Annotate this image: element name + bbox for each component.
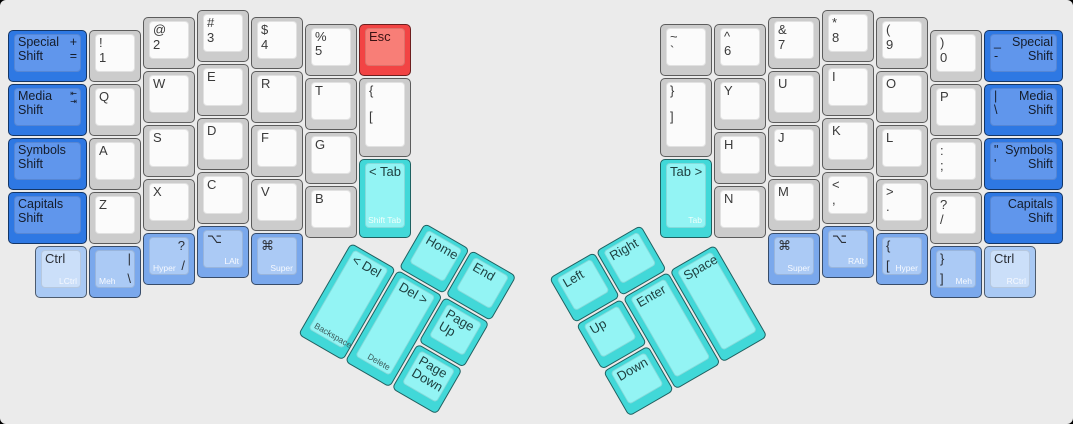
key-n-cap: N bbox=[720, 190, 760, 228]
key-a-label-tl: A bbox=[99, 144, 108, 158]
key-w-label-tl: W bbox=[153, 77, 165, 91]
key-arrow-left-cap: Left bbox=[556, 258, 610, 311]
key-capitals-shift-left[interactable]: Capitals Shift bbox=[8, 192, 87, 244]
key-hyper-left-cap: ?Hyper/ bbox=[149, 237, 189, 275]
key-meh-right-label-bl: ] bbox=[940, 272, 944, 286]
key-hyper-left[interactable]: ?Hyper/ bbox=[143, 233, 195, 285]
key-backspace-label-bl: Backspace bbox=[313, 321, 354, 350]
key-period-label-cl: . bbox=[886, 200, 890, 214]
key-tab-label-br: Tab bbox=[688, 216, 702, 225]
key-6-label-tl: ^ bbox=[724, 30, 730, 44]
key-9-label-tl: ( bbox=[886, 23, 890, 37]
key-d-label-tl: D bbox=[207, 124, 216, 138]
key-esc-label-tl: Esc bbox=[369, 30, 391, 44]
key-0-cap: )0 bbox=[936, 34, 976, 72]
key-m[interactable]: M bbox=[768, 179, 820, 231]
key-ralt[interactable]: ⌥RAlt bbox=[822, 226, 874, 278]
key-g-label-tl: G bbox=[315, 138, 325, 152]
key-9[interactable]: (9 bbox=[876, 17, 928, 69]
key-j-label-tl: J bbox=[778, 131, 785, 145]
key-slash-label-tl: ? bbox=[940, 198, 947, 212]
key-meh-right-label-br: Meh bbox=[955, 277, 972, 286]
key-backspace-label-tl: < Del bbox=[350, 253, 384, 281]
key-1-label-cl: 1 bbox=[99, 51, 106, 65]
key-slash-label-cl: / bbox=[940, 213, 944, 227]
key-ralt-cap: ⌥RAlt bbox=[828, 230, 868, 268]
key-arrow-right-cap: Right bbox=[603, 231, 657, 284]
key-media-shift-right-label-tr: Media Shift bbox=[1019, 90, 1053, 117]
key-shift-tab-label-br: Shift Tab bbox=[368, 216, 401, 225]
key-comma-label-tl: < bbox=[832, 178, 840, 192]
key-1-label-tl: ! bbox=[99, 36, 103, 50]
key-6-cap: ^6 bbox=[720, 28, 760, 66]
key-5-label-cl: 5 bbox=[315, 44, 322, 58]
key-symbols-shift-right-label-tr: Symbols Shift bbox=[1005, 144, 1053, 171]
key-c-label-tl: C bbox=[207, 178, 216, 192]
key-x-label-tl: X bbox=[153, 185, 162, 199]
key-semicolon-label-cl: ; bbox=[940, 159, 944, 173]
key-lctrl-label-br: LCtrl bbox=[59, 277, 77, 286]
key-end-label-tl: End bbox=[470, 260, 497, 284]
key-2-label-cl: 2 bbox=[153, 38, 160, 52]
keyboard-layout-canvas: Special Shift+ =Media Shift⇤ ⇥Symbols Sh… bbox=[0, 0, 1073, 424]
key-lalt[interactable]: ⌥LAlt bbox=[197, 226, 249, 278]
key-0[interactable]: )0 bbox=[930, 30, 982, 82]
key-meh-left-cap: |Meh\ bbox=[95, 250, 135, 288]
key-hyper-right-label-tl: { bbox=[886, 239, 890, 253]
key-n[interactable]: N bbox=[714, 186, 766, 238]
key-i-cap: I bbox=[828, 68, 868, 106]
key-e[interactable]: E bbox=[197, 64, 249, 116]
key-s[interactable]: S bbox=[143, 125, 195, 177]
key-o-label-tl: O bbox=[886, 77, 896, 91]
key-backtick-label-cl: ` bbox=[670, 44, 674, 58]
key-hyper-left-label-bl: Hyper bbox=[153, 264, 176, 273]
key-f[interactable]: F bbox=[251, 125, 303, 177]
key-c-cap: C bbox=[203, 176, 243, 214]
key-q-cap: Q bbox=[95, 88, 135, 126]
key-semicolon[interactable]: :; bbox=[930, 138, 982, 190]
key-2-cap: @2 bbox=[149, 21, 189, 59]
key-t-cap: T bbox=[311, 82, 351, 120]
key-h[interactable]: H bbox=[714, 132, 766, 184]
key-b-label-tl: B bbox=[315, 192, 324, 206]
key-0-label-cl: 0 bbox=[940, 51, 947, 65]
key-lalt-cap: ⌥LAlt bbox=[203, 230, 243, 268]
key-esc-cap: Esc bbox=[365, 28, 405, 66]
key-lsuper[interactable]: ⌘Super bbox=[251, 233, 303, 285]
key-5-cap: %5 bbox=[311, 28, 351, 66]
key-delete-label-br: Delete bbox=[366, 352, 392, 372]
key-r-cap: R bbox=[257, 75, 297, 113]
key-media-shift-left-cap: Media Shift⇤ ⇥ bbox=[14, 88, 81, 126]
key-r[interactable]: R bbox=[251, 71, 303, 123]
key-4-label-cl: 4 bbox=[261, 38, 268, 52]
key-t[interactable]: T bbox=[305, 78, 357, 130]
key-w[interactable]: W bbox=[143, 71, 195, 123]
key-home-cap: Home bbox=[409, 229, 463, 282]
key-hyper-left-label-br: / bbox=[181, 259, 185, 273]
key-3-cap: #3 bbox=[203, 14, 243, 52]
key-media-shift-left[interactable]: Media Shift⇤ ⇥ bbox=[8, 84, 87, 136]
key-backtick-label-tl: ~ bbox=[670, 30, 678, 44]
key-shift-tab-cap: < TabShift Tab bbox=[365, 163, 405, 228]
key-lsuper-cap: ⌘Super bbox=[257, 237, 297, 275]
key-p-cap: P bbox=[936, 88, 976, 126]
key-y-cap: Y bbox=[720, 82, 760, 120]
key-tab[interactable]: Tab >Tab bbox=[660, 159, 712, 238]
key-capitals-shift-right-label-tr: Capitals Shift bbox=[1008, 198, 1053, 225]
key-period-label-tl: > bbox=[886, 185, 894, 199]
key-j-cap: J bbox=[774, 129, 814, 167]
key-b-cap: B bbox=[311, 190, 351, 228]
key-rsuper-cap: ⌘Super bbox=[774, 237, 814, 275]
key-arrow-down-label-tl: Down bbox=[615, 355, 651, 384]
key-2-label-tl: @ bbox=[153, 23, 166, 37]
key-rsuper-label-br: Super bbox=[787, 264, 810, 273]
key-meh-right-cap: }]Meh bbox=[936, 250, 976, 288]
key-media-shift-right-cap: Media Shift| \ bbox=[990, 88, 1057, 126]
key-u-cap: U bbox=[774, 75, 814, 113]
key-t-label-tl: T bbox=[315, 84, 323, 98]
key-symbols-shift-left-label-tl: Symbols Shift bbox=[18, 144, 66, 171]
key-page-up-label-tl: Page Up bbox=[436, 307, 476, 346]
key-meh-left-label-br: \ bbox=[127, 272, 131, 286]
key-a-cap: A bbox=[95, 142, 135, 180]
key-hyper-right-label-bl: [ bbox=[886, 259, 890, 273]
key-2[interactable]: @2 bbox=[143, 17, 195, 69]
key-symbols-shift-right-label-tl: " ' bbox=[994, 144, 998, 171]
key-enter-label-tl: Enter bbox=[634, 282, 668, 310]
key-b[interactable]: B bbox=[305, 186, 357, 238]
key-meh-right-label-tl: } bbox=[940, 252, 944, 266]
key-a[interactable]: A bbox=[89, 138, 141, 190]
key-g[interactable]: G bbox=[305, 132, 357, 184]
key-special-shift-left-label-tr: + = bbox=[70, 36, 77, 63]
key-tab-label-tl: Tab > bbox=[670, 165, 702, 179]
key-e-label-tl: E bbox=[207, 70, 216, 84]
key-right-brace-label-tl: } bbox=[670, 84, 674, 98]
key-symbols-shift-right[interactable]: Symbols Shift" ' bbox=[984, 138, 1063, 190]
key-lctrl-cap: CtrlLCtrl bbox=[41, 250, 81, 288]
key-special-shift-left-cap: Special Shift+ = bbox=[14, 34, 81, 72]
key-l[interactable]: L bbox=[876, 125, 928, 177]
key-i[interactable]: I bbox=[822, 64, 874, 116]
key-k[interactable]: K bbox=[822, 118, 874, 170]
key-comma[interactable]: <, bbox=[822, 172, 874, 224]
key-semicolon-label-tl: : bbox=[940, 144, 944, 158]
key-media-shift-right-label-tl: | \ bbox=[994, 90, 997, 117]
key-meh-left-label-tr: | bbox=[128, 252, 131, 266]
key-r-label-tl: R bbox=[261, 77, 270, 91]
key-5[interactable]: %5 bbox=[305, 24, 357, 76]
key-8[interactable]: *8 bbox=[822, 10, 874, 62]
key-comma-label-cl: , bbox=[832, 193, 836, 207]
key-i-label-tl: I bbox=[832, 70, 836, 84]
key-o[interactable]: O bbox=[876, 71, 928, 123]
key-j[interactable]: J bbox=[768, 125, 820, 177]
key-rctrl[interactable]: CtrlRCtrl bbox=[984, 246, 1036, 298]
key-7-cap: &7 bbox=[774, 21, 814, 59]
key-x-cap: X bbox=[149, 183, 189, 221]
key-period[interactable]: >. bbox=[876, 179, 928, 231]
key-9-cap: (9 bbox=[882, 21, 922, 59]
key-page-down-label-tl: Page Down bbox=[409, 354, 452, 395]
key-lsuper-label-br: Super bbox=[270, 264, 293, 273]
key-g-cap: G bbox=[311, 136, 351, 174]
key-f-label-tl: F bbox=[261, 131, 269, 145]
key-4-label-tl: $ bbox=[261, 23, 268, 37]
key-capitals-shift-left-cap: Capitals Shift bbox=[14, 196, 81, 234]
key-meh-left-label-bl: Meh bbox=[99, 277, 116, 286]
key-0-label-tl: ) bbox=[940, 36, 944, 50]
key-4[interactable]: $4 bbox=[251, 17, 303, 69]
key-symbols-shift-left-cap: Symbols Shift bbox=[14, 142, 81, 180]
key-d[interactable]: D bbox=[197, 118, 249, 170]
key-lctrl[interactable]: CtrlLCtrl bbox=[35, 246, 87, 298]
key-capitals-shift-left-label-tl: Capitals Shift bbox=[18, 198, 63, 225]
key-esc[interactable]: Esc bbox=[359, 24, 411, 76]
key-shift-tab[interactable]: < TabShift Tab bbox=[359, 159, 411, 238]
key-7-label-cl: 7 bbox=[778, 38, 785, 52]
key-end-cap: End bbox=[456, 256, 510, 309]
key-special-shift-right-label-tl: _ - bbox=[994, 36, 1001, 63]
key-left-brace[interactable]: {[ bbox=[359, 78, 411, 157]
key-symbols-shift-left[interactable]: Symbols Shift bbox=[8, 138, 87, 190]
key-tab-cap: Tab >Tab bbox=[666, 163, 706, 228]
key-n-label-tl: N bbox=[724, 192, 733, 206]
key-rctrl-label-tl: Ctrl bbox=[994, 252, 1014, 266]
key-3[interactable]: #3 bbox=[197, 10, 249, 62]
key-3-label-tl: # bbox=[207, 16, 214, 30]
key-arrow-right-label-tl: Right bbox=[607, 236, 640, 263]
key-comma-cap: <, bbox=[828, 176, 868, 214]
key-8-cap: *8 bbox=[828, 14, 868, 52]
key-symbols-shift-right-cap: Symbols Shift" ' bbox=[990, 142, 1057, 180]
key-rsuper-label-tl: ⌘ bbox=[778, 239, 791, 252]
key-y-label-tl: Y bbox=[724, 84, 733, 98]
key-6-label-cl: 6 bbox=[724, 44, 731, 58]
key-u-label-tl: U bbox=[778, 77, 787, 91]
key-m-cap: M bbox=[774, 183, 814, 221]
key-media-shift-left-label-tr: ⇤ ⇥ bbox=[70, 90, 77, 106]
key-v[interactable]: V bbox=[251, 179, 303, 231]
key-media-shift-left-label-tl: Media Shift bbox=[18, 90, 52, 117]
key-m-label-tl: M bbox=[778, 185, 789, 199]
key-lsuper-label-tl: ⌘ bbox=[261, 239, 274, 252]
key-z-cap: Z bbox=[95, 196, 135, 234]
key-backtick[interactable]: ~` bbox=[660, 24, 712, 76]
key-8-label-tl: * bbox=[832, 16, 837, 30]
key-lctrl-label-tl: Ctrl bbox=[45, 252, 65, 266]
key-special-shift-right-label-tr: Special Shift bbox=[1012, 36, 1053, 63]
key-lalt-label-tl: ⌥ bbox=[207, 232, 222, 245]
key-space-label-tl: Space bbox=[681, 253, 720, 284]
key-ralt-label-br: RAlt bbox=[848, 257, 864, 266]
key-hyper-right[interactable]: {[Hyper bbox=[876, 233, 928, 285]
key-c[interactable]: C bbox=[197, 172, 249, 224]
key-l-cap: L bbox=[882, 129, 922, 167]
key-left-brace-label-cl: [ bbox=[369, 110, 373, 124]
key-period-cap: >. bbox=[882, 183, 922, 221]
key-7[interactable]: &7 bbox=[768, 17, 820, 69]
key-5-label-tl: % bbox=[315, 30, 327, 44]
key-meh-right[interactable]: }]Meh bbox=[930, 246, 982, 298]
key-4-cap: $4 bbox=[257, 21, 297, 59]
key-p-label-tl: P bbox=[940, 90, 949, 104]
key-left-brace-cap: {[ bbox=[365, 82, 405, 147]
key-1-cap: !1 bbox=[95, 34, 135, 72]
key-special-shift-left[interactable]: Special Shift+ = bbox=[8, 30, 87, 82]
key-q-label-tl: Q bbox=[99, 90, 109, 104]
key-right-brace-label-cl: ] bbox=[670, 110, 674, 124]
key-hyper-right-label-br: Hyper bbox=[895, 264, 918, 273]
key-k-label-tl: K bbox=[832, 124, 841, 138]
key-special-shift-left-label-tl: Special Shift bbox=[18, 36, 59, 63]
key-media-shift-right[interactable]: Media Shift| \ bbox=[984, 84, 1063, 136]
key-o-cap: O bbox=[882, 75, 922, 113]
key-u[interactable]: U bbox=[768, 71, 820, 123]
key-6[interactable]: ^6 bbox=[714, 24, 766, 76]
key-h-label-tl: H bbox=[724, 138, 733, 152]
key-delete-label-tl: Del > bbox=[396, 280, 430, 308]
key-3-label-cl: 3 bbox=[207, 31, 214, 45]
key-arrow-up-label-tl: Up bbox=[588, 317, 609, 337]
key-k-cap: K bbox=[828, 122, 868, 160]
key-s-label-tl: S bbox=[153, 131, 162, 145]
key-capitals-shift-right[interactable]: Capitals Shift bbox=[984, 192, 1063, 244]
key-rctrl-cap: CtrlRCtrl bbox=[990, 250, 1030, 288]
key-rctrl-label-br: RCtrl bbox=[1007, 277, 1026, 286]
key-d-cap: D bbox=[203, 122, 243, 160]
key-shift-tab-label-tl: < Tab bbox=[369, 165, 401, 179]
key-slash[interactable]: ?/ bbox=[930, 192, 982, 244]
key-ralt-label-tl: ⌥ bbox=[832, 232, 847, 245]
key-left-brace-label-tl: { bbox=[369, 84, 373, 98]
key-z[interactable]: Z bbox=[89, 192, 141, 244]
key-meh-left[interactable]: |Meh\ bbox=[89, 246, 141, 298]
key-v-cap: V bbox=[257, 183, 297, 221]
key-v-label-tl: V bbox=[261, 185, 270, 199]
key-p[interactable]: P bbox=[930, 84, 982, 136]
key-s-cap: S bbox=[149, 129, 189, 167]
key-9-label-cl: 9 bbox=[886, 38, 893, 52]
key-hyper-left-label-tr: ? bbox=[178, 239, 185, 253]
key-arrow-left-label-tl: Left bbox=[561, 267, 587, 290]
key-backtick-cap: ~` bbox=[666, 28, 706, 66]
key-e-cap: E bbox=[203, 68, 243, 106]
key-right-brace-cap: }] bbox=[666, 82, 706, 147]
key-8-label-cl: 8 bbox=[832, 31, 839, 45]
key-rsuper[interactable]: ⌘Super bbox=[768, 233, 820, 285]
key-lalt-label-br: LAlt bbox=[224, 257, 239, 266]
key-hyper-right-cap: {[Hyper bbox=[882, 237, 922, 275]
key-f-cap: F bbox=[257, 129, 297, 167]
key-home-label-tl: Home bbox=[423, 233, 460, 262]
key-7-label-tl: & bbox=[778, 23, 787, 37]
key-capitals-shift-right-cap: Capitals Shift bbox=[990, 196, 1057, 234]
key-right-brace[interactable]: }] bbox=[660, 78, 712, 157]
key-h-cap: H bbox=[720, 136, 760, 174]
key-1[interactable]: !1 bbox=[89, 30, 141, 82]
key-x[interactable]: X bbox=[143, 179, 195, 231]
key-semicolon-cap: :; bbox=[936, 142, 976, 180]
key-y[interactable]: Y bbox=[714, 78, 766, 130]
key-special-shift-right-cap: Special Shift_ - bbox=[990, 34, 1057, 72]
key-special-shift-right[interactable]: Special Shift_ - bbox=[984, 30, 1063, 82]
key-l-label-tl: L bbox=[886, 131, 893, 145]
key-z-label-tl: Z bbox=[99, 198, 107, 212]
key-w-cap: W bbox=[149, 75, 189, 113]
key-slash-cap: ?/ bbox=[936, 196, 976, 234]
key-q[interactable]: Q bbox=[89, 84, 141, 136]
